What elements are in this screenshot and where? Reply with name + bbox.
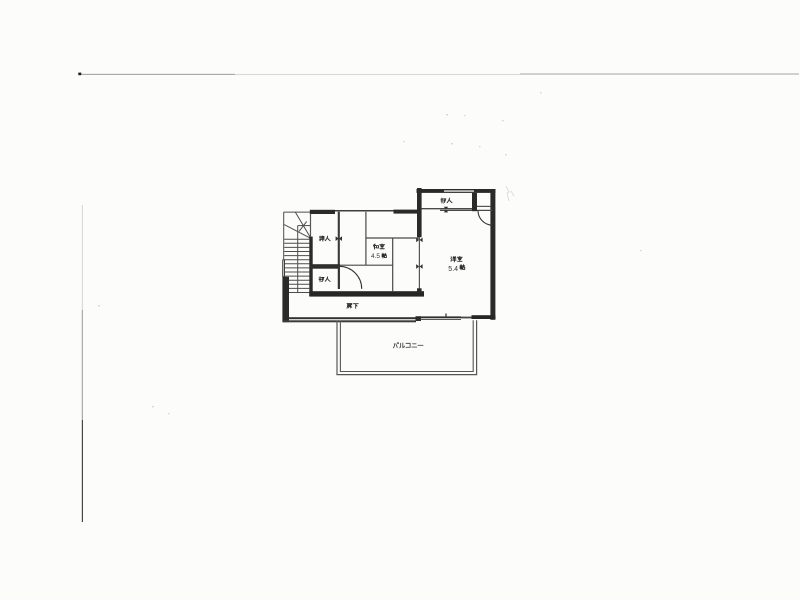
svg-text:5.4: 5.4 xyxy=(448,266,458,273)
svg-text:4.5: 4.5 xyxy=(371,253,380,260)
